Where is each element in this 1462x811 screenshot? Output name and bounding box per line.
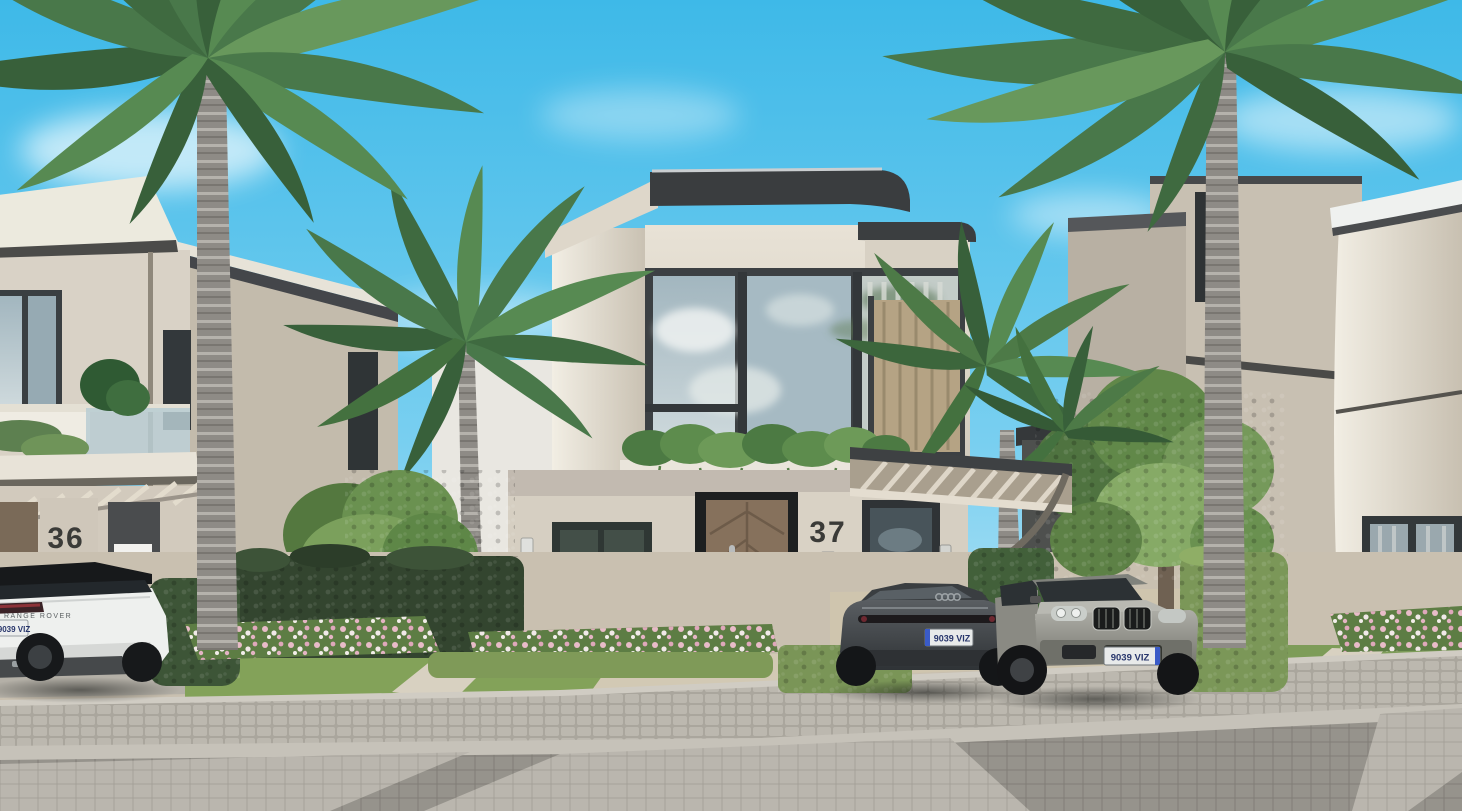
rover-front-wheel xyxy=(122,642,162,682)
house-number-36: 36 xyxy=(47,522,84,555)
sedan-taillight-bar xyxy=(858,615,998,623)
sedan-taillight-left xyxy=(861,616,867,622)
rover-rear-rim xyxy=(28,645,52,669)
right-wing-roof xyxy=(858,222,976,242)
sedan-plate-eu-strip xyxy=(925,629,930,646)
headlight-halo-2 xyxy=(1072,609,1081,618)
roof-highlight xyxy=(652,169,882,171)
rover-badge-text: RANGE ROVER xyxy=(4,613,72,620)
suv-intake-left xyxy=(1062,645,1096,659)
headlight-halo-1 xyxy=(1057,609,1066,618)
sedan-wheel-left xyxy=(836,646,876,686)
suv-plate-eu-strip xyxy=(1155,647,1160,665)
rover-taillight-glow xyxy=(0,605,40,607)
suv-mirror xyxy=(1030,596,1041,603)
flowerbed-right xyxy=(1330,606,1462,652)
left-villa-corner-window xyxy=(0,290,62,414)
sedan-plate-text: 9039 VIZ xyxy=(934,634,971,644)
rendered-scene: 36 xyxy=(0,0,1462,811)
suv-wheel-right xyxy=(1157,653,1199,695)
suv-rim-left xyxy=(1010,658,1034,682)
suv-headlight-right xyxy=(1158,609,1186,623)
suv-plate-text: 9039 VIZ xyxy=(1111,653,1150,664)
low-hedge-row xyxy=(428,652,773,678)
rover-plate-text: 9039 VIZ xyxy=(0,625,30,634)
sedan-taillight-right xyxy=(989,616,995,622)
house-number-37: 37 xyxy=(809,516,846,549)
